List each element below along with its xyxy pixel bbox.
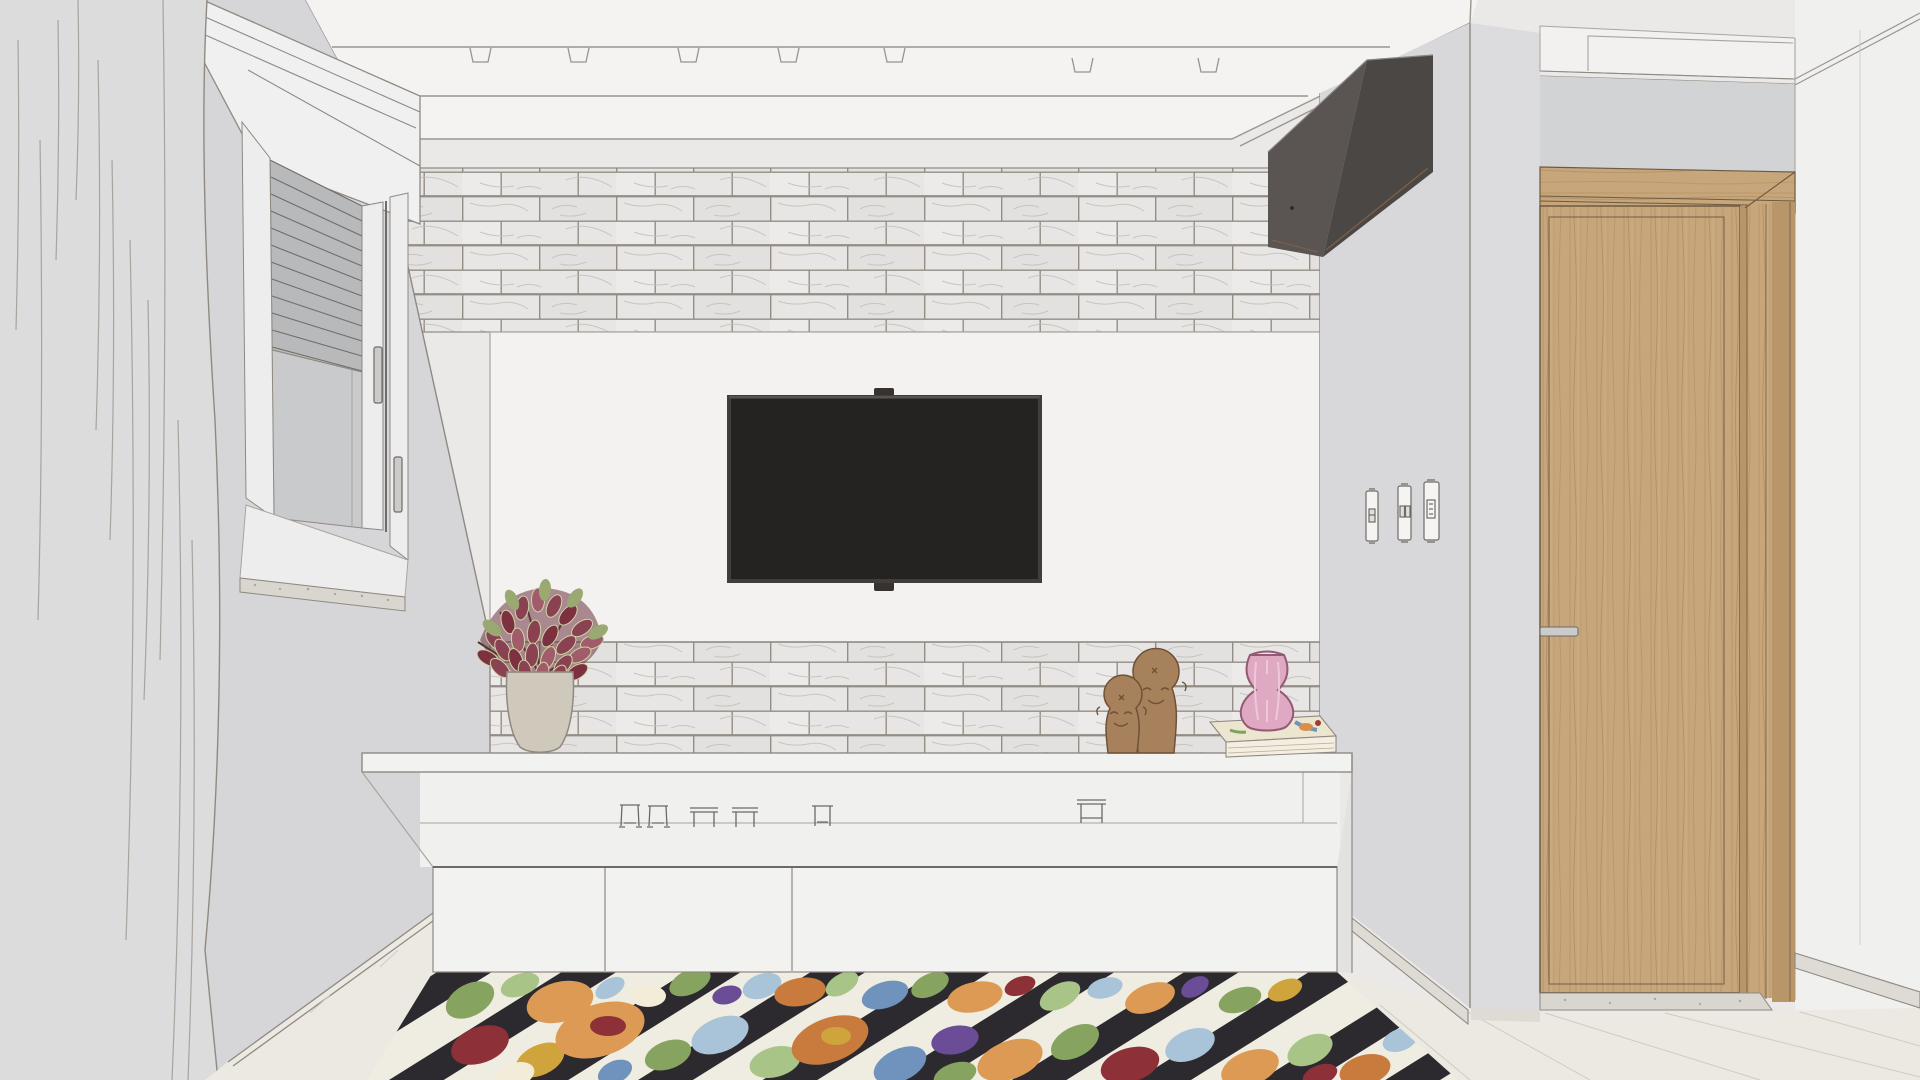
window-handle-icon	[374, 347, 382, 403]
baseboard-alcove	[1471, 1008, 1540, 1022]
head-small	[1104, 675, 1142, 753]
curtain: sheer grey curtain	[0, 0, 220, 1080]
scene-svg: recessed ceiling spotlights marble subwa…	[0, 0, 1920, 1080]
render-canvas: recessed ceiling spotlights marble subwa…	[0, 0, 1920, 1080]
switch-plate	[1424, 482, 1439, 540]
switch-plate-1	[1366, 489, 1378, 543]
tv: wall-mounted flat-screen TV	[727, 388, 1042, 591]
window-jamb-left	[242, 122, 274, 518]
curtain-panel	[0, 0, 220, 1080]
door-threshold	[1540, 993, 1772, 1010]
far-right-wall	[1795, 0, 1920, 1080]
window-handle-icon	[394, 457, 402, 512]
door-jamb-inner	[1747, 204, 1772, 998]
plant-vase	[507, 672, 574, 752]
door-slab	[1540, 206, 1740, 993]
console-recess	[420, 772, 1340, 867]
tv-mount-bottom	[874, 582, 894, 591]
brick-band-bottom	[468, 642, 1320, 758]
tv-mount-top	[874, 388, 894, 396]
window-glass	[272, 350, 362, 528]
tv-console: white TV console cabinet miniature furni…	[362, 753, 1352, 973]
switch-plate-3	[1424, 480, 1439, 542]
door: wooden door	[1540, 167, 1795, 1010]
ac-sensor-dot	[1290, 206, 1294, 210]
wall-above-door	[1540, 76, 1795, 172]
door-edge-strip	[1740, 206, 1747, 995]
switch-plate-2	[1398, 484, 1411, 542]
console-drawer-front	[433, 867, 1337, 972]
alcove-wall-strip	[1470, 23, 1540, 1012]
tv-screen	[731, 399, 1038, 579]
brick-band-top	[375, 168, 1320, 332]
console-countertop	[362, 753, 1352, 772]
door-jamb-outer	[1772, 202, 1795, 1002]
rug: floral kilim rug with black and cream st…	[360, 962, 1470, 1080]
door-handle	[1540, 627, 1578, 636]
